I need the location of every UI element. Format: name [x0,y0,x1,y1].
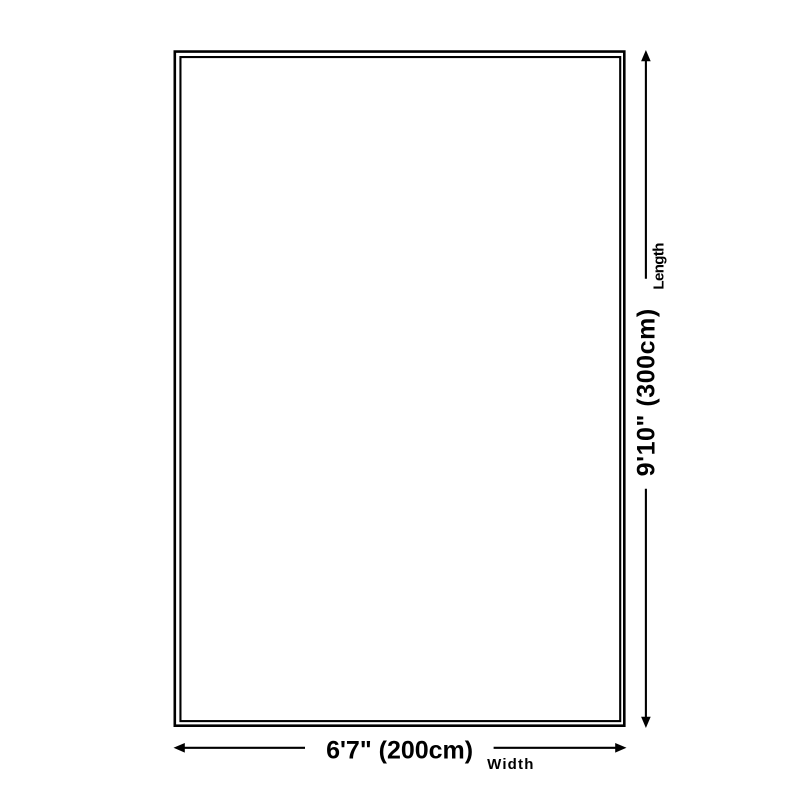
svg-text:Width: Width [487,756,535,773]
svg-text:6'7" (200cm): 6'7" (200cm) [326,737,473,765]
svg-text:9'10" (300cm): 9'10" (300cm) [633,308,661,476]
svg-text:Length: Length [651,243,668,290]
